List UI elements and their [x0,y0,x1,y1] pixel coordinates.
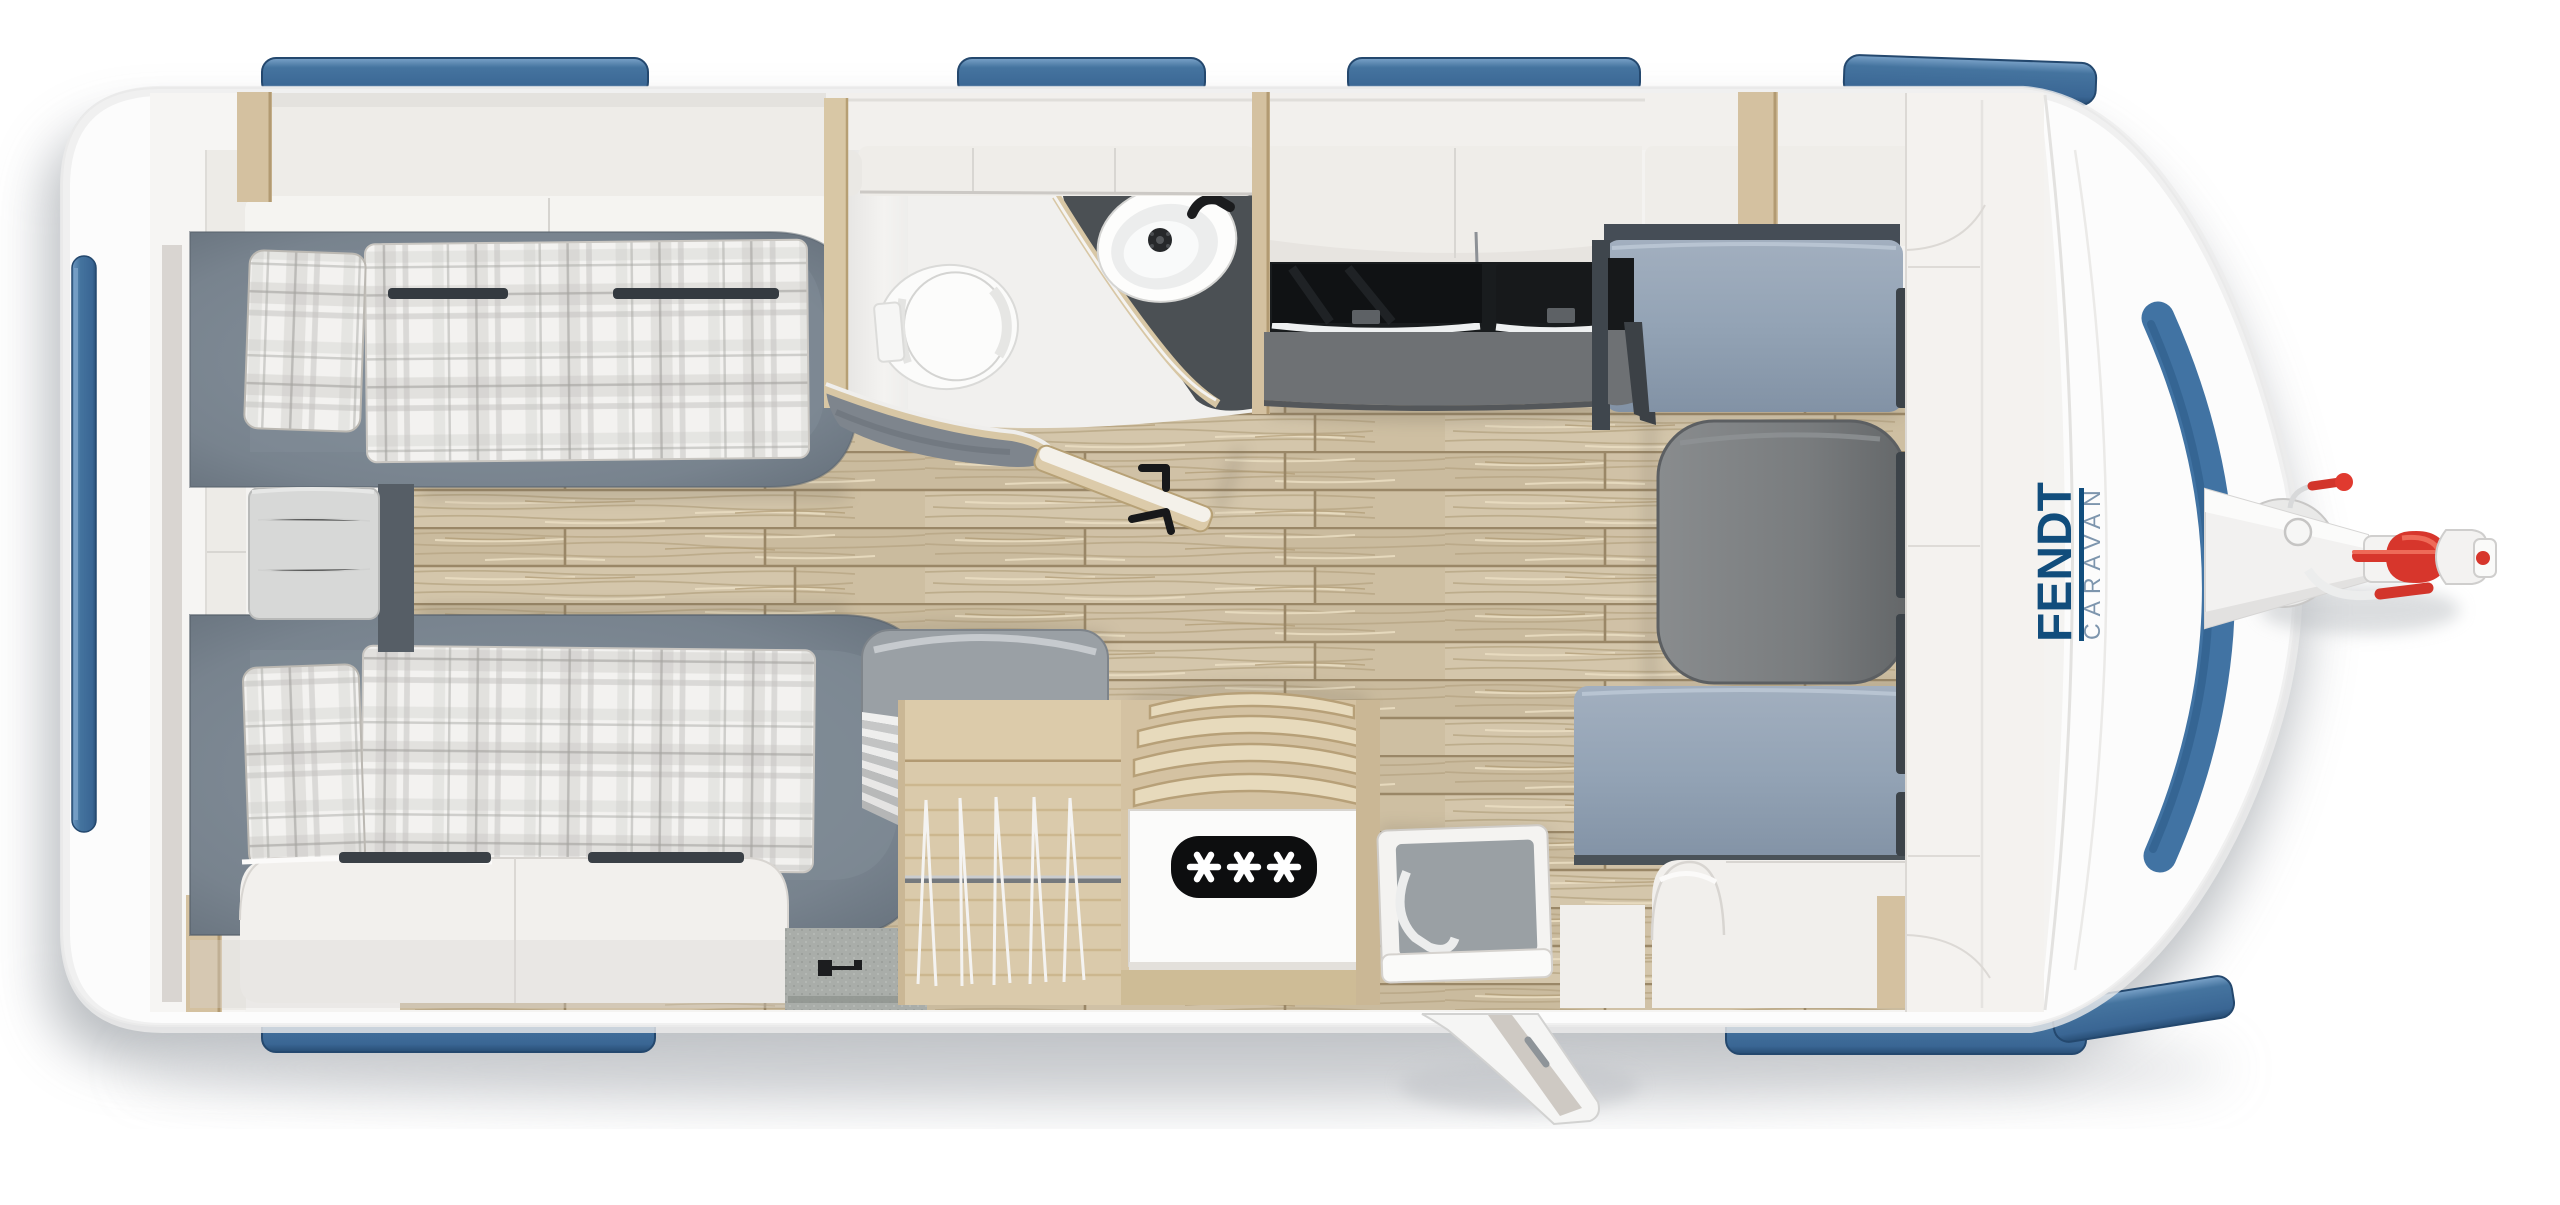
svg-text:CARAVAN: CARAVAN [2079,483,2105,640]
svg-text:FENDT: FENDT [2029,482,2082,642]
